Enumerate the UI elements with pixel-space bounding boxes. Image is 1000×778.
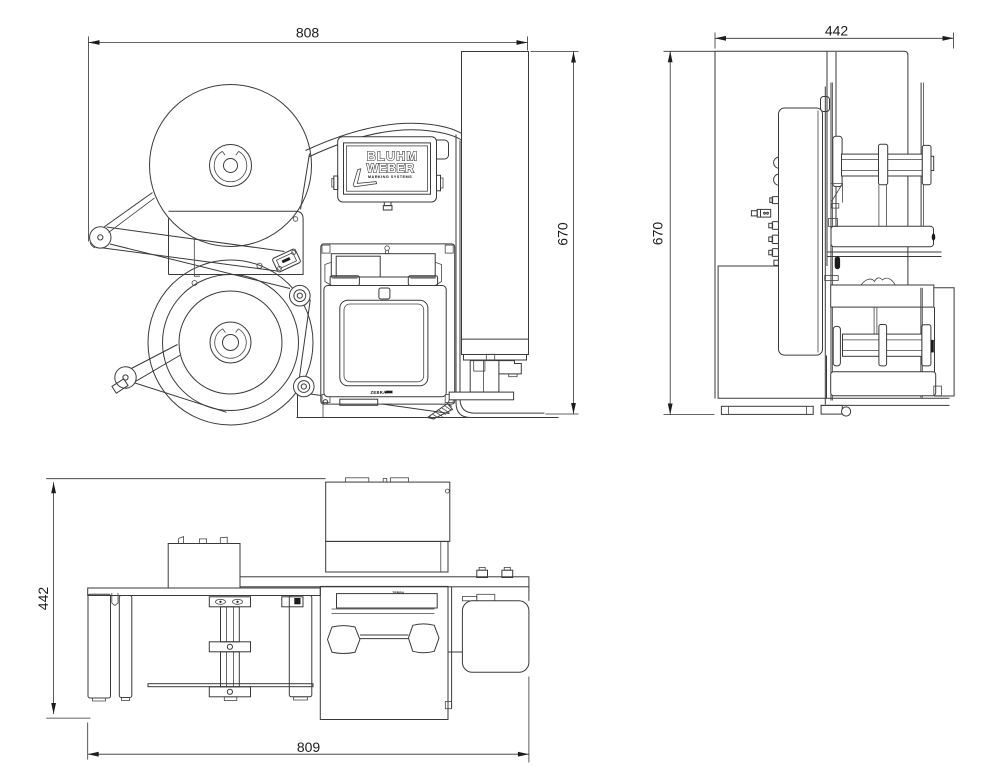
svg-text:ZEBRA: ZEBRA xyxy=(371,390,387,395)
svg-text:808: 808 xyxy=(296,25,320,41)
svg-text:670: 670 xyxy=(650,222,666,246)
svg-text:442: 442 xyxy=(35,587,51,611)
svg-text:ZEBRA: ZEBRA xyxy=(392,591,405,595)
svg-text:MARKING SYSTEMS: MARKING SYSTEMS xyxy=(368,174,412,179)
svg-text:809: 809 xyxy=(297,739,321,755)
svg-text:670: 670 xyxy=(555,222,571,246)
svg-text:442: 442 xyxy=(825,23,849,39)
